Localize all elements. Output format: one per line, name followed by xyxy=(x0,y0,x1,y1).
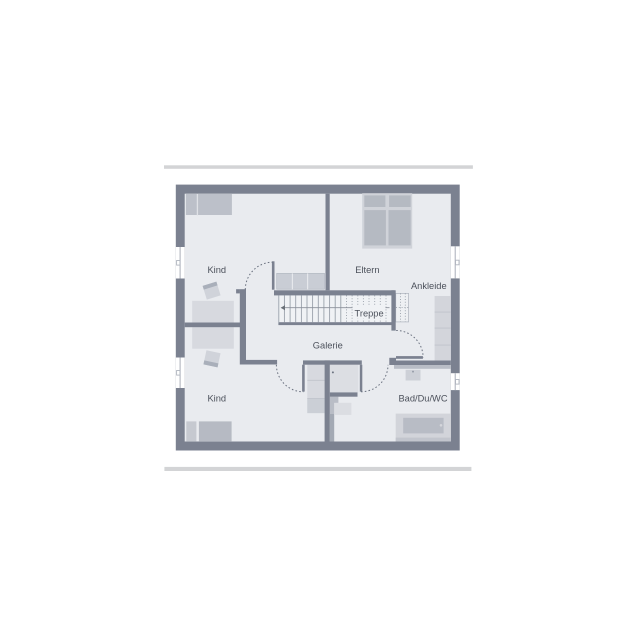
svg-text:Bad/Du/WC: Bad/Du/WC xyxy=(398,393,447,403)
svg-text:Eltern: Eltern xyxy=(355,265,379,275)
svg-text:Kind: Kind xyxy=(207,265,226,275)
svg-text:Ankleide: Ankleide xyxy=(411,281,447,291)
svg-text:Kind: Kind xyxy=(207,393,226,403)
svg-text:Treppe: Treppe xyxy=(355,309,384,319)
svg-text:Galerie: Galerie xyxy=(313,340,343,350)
